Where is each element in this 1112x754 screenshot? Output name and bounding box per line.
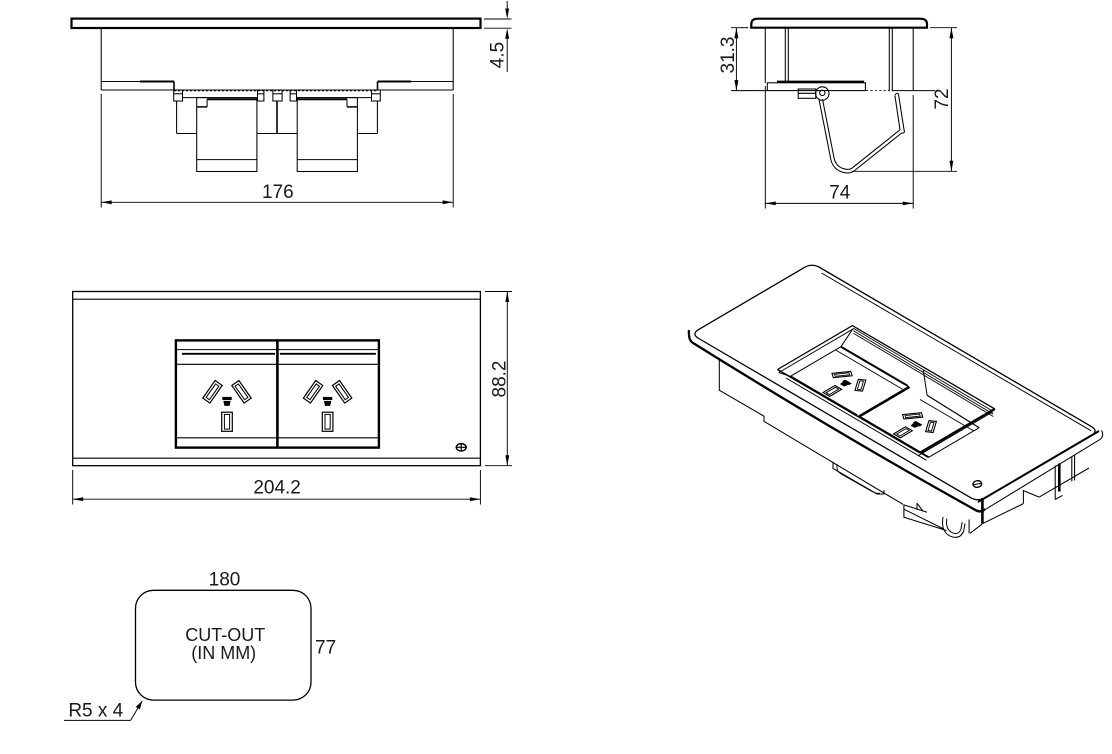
svg-text:74: 74 (829, 183, 851, 204)
svg-text:180: 180 (209, 570, 241, 591)
svg-text:72: 72 (932, 88, 953, 109)
svg-text:88.2: 88.2 (490, 361, 511, 398)
svg-text:CUT-OUT: CUT-OUT (185, 625, 265, 645)
svg-text:77: 77 (315, 638, 336, 659)
svg-text:204.2: 204.2 (253, 478, 301, 499)
svg-text:31.3: 31.3 (718, 37, 739, 74)
svg-text:R5 x 4: R5 x 4 (68, 701, 123, 722)
svg-text:4.5: 4.5 (488, 42, 509, 68)
svg-text:(IN MM): (IN MM) (191, 643, 256, 663)
svg-text:176: 176 (262, 182, 294, 203)
